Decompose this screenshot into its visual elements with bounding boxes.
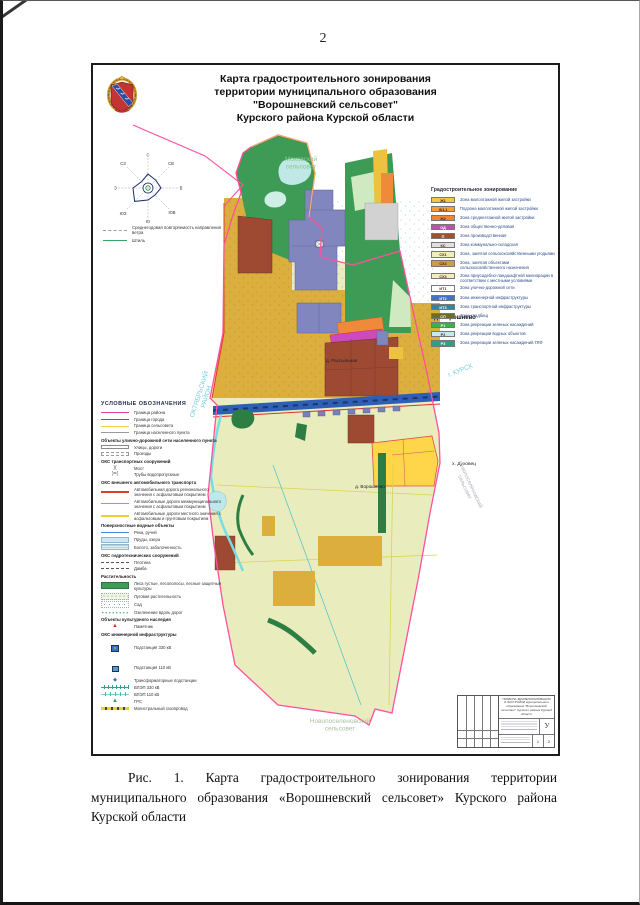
legend-group-title: Поверхностные водные объекты [101, 523, 225, 528]
zone-label: Зона кладбищ [460, 313, 488, 318]
legend-item-label: Памятник [134, 624, 153, 629]
legend-item: Автомобильная дорога регионального значе… [101, 487, 225, 497]
zoning-legend-item: КСЗона коммунально-складская [431, 242, 555, 249]
line-red-swatch [101, 419, 129, 420]
fill-forest-swatch [101, 582, 129, 589]
zone-label: Зона производственная [460, 233, 506, 238]
legend-item-label: Улицы, дороги [134, 445, 162, 450]
zone-zh1-patch [389, 347, 403, 359]
zoning-legend: Градостроительное зонирование Ж1Зона мал… [431, 187, 555, 349]
legend-group-title: Растительность [101, 574, 225, 579]
figure-caption: Рис. 1. Карта градостроительного зониров… [91, 768, 557, 826]
legend-item: Озеленение вдоль дорог [101, 610, 225, 615]
line-yellow-thick-swatch [101, 515, 129, 517]
stamp-letter: У [539, 719, 554, 734]
legend-item: Магистральный газопровод [101, 706, 225, 711]
dots-sad-swatch [101, 601, 129, 608]
sub330-swatch [101, 639, 129, 657]
legend-item-label: Граница района [134, 410, 165, 415]
fill-lightblue-swatch [101, 537, 129, 543]
transformer-swatch: ◆ [101, 678, 129, 683]
zone-swatch: Р3 [431, 340, 455, 347]
zone-label: Зона инженерной инфраструктуры [460, 295, 528, 300]
legend-item-label: Проезды [134, 451, 151, 456]
zoning-legend-item: СПЗона кладбищ [431, 313, 555, 320]
zone-sx2-patch [318, 536, 382, 566]
forest-strip [378, 453, 386, 533]
zone-label: Зона приусадебно-ландшафтной мелиорации … [460, 273, 555, 283]
legend-item-label: Дамба [134, 566, 147, 571]
legend-group-title: ОКС транспортных сооружений [101, 459, 225, 464]
zone-p-main [325, 337, 398, 396]
monument-swatch: ▲ [101, 624, 129, 630]
zone-label: Зона, занятая сельскохозяйственными угод… [460, 251, 555, 256]
line-orange-swatch [101, 503, 129, 504]
legend-item-label: Река, ручей [134, 530, 157, 535]
zoning-legend-item: ОДЗона общественно-деловая [431, 224, 555, 231]
stamp-illegible-text [501, 737, 530, 745]
legend-group-title: ОКС внешнего автомобильного транспорта [101, 480, 225, 485]
legend-item-label: Граница сельсовета [134, 423, 173, 428]
dash-dark-swatch [101, 568, 129, 569]
legend-item-label: Магистральный газопровод [134, 706, 188, 711]
zone-swatch: СХ2 [431, 260, 455, 267]
zoning-legend-item: Ж1.1Подзона малоэтажной жилой застройки [431, 206, 555, 213]
legend-item-label: Подстанция 330 кВ [134, 645, 171, 650]
culvert-swatch: )=( [101, 472, 129, 477]
zone-label: Зона среднеэтажной жилой застройки [460, 215, 535, 220]
line-red-thick-swatch [101, 491, 129, 493]
legend-group-title: Объекты улично-дорожной сети населенного… [101, 438, 225, 443]
zone-swatch: Ж2 [431, 215, 455, 222]
fill-swamp-swatch [101, 544, 129, 550]
zone-sx2-patch [262, 516, 275, 536]
line-yellow-swatch [101, 426, 129, 427]
stamp-title: ПРАВИЛА ЗЕМЛЕПОЛЬЗОВАНИЯ И ЗАСТРОЙКИ мун… [499, 696, 554, 719]
conventional-legend: УСЛОВНЫЕ ОБОЗНАЧЕНИЯ Граница районаГрани… [101, 401, 225, 713]
legend-item: ВЛЭП 330 кВ [101, 685, 225, 690]
zoning-legend-item: ИТ1Зона улично-дорожной сети [431, 285, 555, 292]
road-dashed-swatch [101, 452, 129, 456]
zone-zh2-patch [377, 331, 388, 345]
legend-item: Граница города [101, 417, 225, 422]
zone-label: Зона общественно-деловая [460, 224, 514, 229]
legend-item: Плотина [101, 560, 225, 565]
label-neighbor-right: Новопоселеновскийсельсовет [451, 460, 485, 512]
legend-item: Сад [101, 601, 225, 608]
legend-item: Пруды, озера [101, 537, 225, 543]
zone-swatch: СХ1 [431, 251, 455, 258]
conventional-legend-title: УСЛОВНЫЕ ОБОЗНАЧЕНИЯ [101, 401, 225, 407]
zoning-legend-item: СХ1Зона, занятая сельскохозяйственными у… [431, 251, 555, 258]
legend-item: ▲ГРС [101, 698, 225, 704]
vl110-swatch [101, 692, 129, 696]
legend-item: ◆Трансформаторные подстанции [101, 678, 225, 683]
sub110-swatch [101, 659, 129, 677]
zone-p-south [348, 415, 374, 443]
legend-item-label: Граница города [134, 417, 164, 422]
zone-label: Зона рекреации зеленых насаждений [460, 322, 533, 327]
title-block-stamp: ПРАВИЛА ЗЕМЛЕПОЛЬЗОВАНИЯ И ЗАСТРОЙКИ мун… [457, 695, 555, 748]
grs-swatch: ▲ [101, 698, 129, 704]
legend-item-label: Подстанция 110 кВ [134, 665, 171, 670]
page-number: 2 [3, 31, 640, 47]
label-voroshnevo-2: д. Ворошнево [355, 484, 385, 489]
zone-swatch: Р1 [431, 322, 455, 329]
legend-item-label: ГРС [134, 699, 142, 704]
legend-item: Дамба [101, 566, 225, 571]
zone-label: Зона малоэтажной жилой застройки [460, 197, 531, 202]
zone-swatch: П [431, 233, 455, 240]
zone-label: Подзона малоэтажной жилой застройки [460, 206, 538, 211]
zone-swatch: ИТ1 [431, 285, 455, 292]
zone-swatch: Ж1.1 [431, 206, 455, 213]
legend-item-label: Граница населенного пункта [134, 430, 190, 435]
zone-swatch: Р2 [431, 331, 455, 338]
line-blue-swatch [101, 532, 129, 533]
zoning-legend-item: Р1Зона рекреации зеленых насаждений [431, 322, 555, 329]
zone-swatch: ОД [431, 224, 455, 231]
zone-label: Зона транспортной инфраструктуры [460, 304, 531, 309]
legend-item-label: Сад [134, 602, 142, 607]
legend-item-label: Трансформаторные подстанции [134, 678, 197, 683]
zoning-legend-item: Р2Зона рекреации водных объектов [431, 331, 555, 338]
label-city-kursk: г. КУРСК [447, 363, 474, 379]
zone-swatch: СП [431, 313, 455, 320]
dash-dark-swatch [101, 562, 129, 563]
label-neighbor-bottom: Новопоселеновскийсельсовет [310, 717, 371, 732]
zoning-legend-item: ПЗона производственная [431, 233, 555, 240]
legend-item: Болото, заболоченность [101, 544, 225, 550]
legend-item-label: Трубы водопропускные [134, 472, 179, 477]
line-grey-swatch [101, 432, 129, 433]
legend-group-title: ОКС гидротехнических сооружений [101, 553, 225, 558]
zone-swatch: ИТ2 [431, 295, 455, 302]
stamp-sheets-total: 2 [543, 735, 554, 747]
legend-item-label: Плотина [134, 560, 151, 565]
zoning-legend-item: Ж1Зона малоэтажной жилой застройки [431, 197, 555, 204]
label-rassylnaya: д. Рассыльная [326, 358, 358, 363]
line-magenta-swatch [101, 412, 129, 413]
zoning-legend-item: Ж2Зона среднеэтажной жилой застройки [431, 215, 555, 222]
zoning-legend-item: СХ2Зона, занятая объектами сельскохозяйс… [431, 260, 555, 270]
zone-label: Зона рекреации зеленых насаждений ГЛФ [460, 340, 543, 345]
legend-item: Улицы, дороги [101, 445, 225, 450]
legend-group-title: Объекты культурного наследия [101, 617, 225, 622]
gas-swatch [101, 707, 129, 710]
legend-item: Граница сельсовета [101, 423, 225, 428]
legend-item: Леса густые, лесополосы, лесные защитные… [101, 581, 225, 591]
legend-item: Река, ручей [101, 530, 225, 535]
zone-label: Зона, занятая объектами сельскохозяйстве… [460, 260, 555, 270]
legend-item: Подстанция 110 кВ [101, 659, 225, 677]
legend-item-label: Пруды, озера [134, 537, 160, 542]
legend-item: Граница населенного пункта [101, 430, 225, 435]
dots-road-swatch [101, 610, 129, 614]
district-boundary-line [133, 125, 243, 205]
zone-swatch: Ж1 [431, 197, 455, 204]
legend-item-label: Луговая растительность [134, 594, 181, 599]
legend-item: Луговая растительность [101, 593, 225, 600]
legend-item-label: Автомобильные дороги межмуниципального з… [134, 499, 225, 509]
legend-item: Подстанция 330 кВ [101, 639, 225, 657]
legend-item-label: Мост [134, 466, 144, 471]
zoning-legend-items: Ж1Зона малоэтажной жилой застройкиЖ1.1По… [431, 197, 555, 347]
legend-item: Проезды [101, 451, 225, 456]
legend-item: Автомобильные дороги местного значения с… [101, 511, 225, 521]
legend-item: ВЛЭП 110 кВ [101, 692, 225, 697]
road-swatch [101, 445, 129, 449]
legend-item-label: Автомобильные дороги местного значения с… [134, 511, 225, 521]
legend-item-label: Леса густые, лесополосы, лесные защитные… [134, 581, 225, 591]
zone-label: Зона рекреации водных объектов [460, 331, 526, 336]
legend-item: )(Мост [101, 466, 225, 471]
stamp-illegible-text [501, 721, 537, 732]
zone-swatch: СХ3 [431, 273, 455, 280]
zone-swatch: ИТ3 [431, 304, 455, 311]
figure-frame: Карта градостроительного зонирования тер… [91, 63, 560, 756]
zone-sx2-patch [273, 571, 315, 606]
legend-item-label: Болото, заболоченность [134, 545, 182, 550]
zoning-legend-item: СХ3Зона приусадебно-ландшафтной мелиорац… [431, 273, 555, 283]
legend-item-label: Озеленение вдоль дорог [134, 610, 182, 615]
dots-green-swatch [101, 593, 129, 600]
zoning-legend-item: ИТ2Зона инженерной инфраструктуры [431, 295, 555, 302]
zoning-legend-item: ИТ3Зона транспортной инфраструктуры [431, 304, 555, 311]
zoning-legend-title: Градостроительное зонирование [431, 187, 555, 193]
zone-label: Зона коммунально-складская [460, 242, 518, 247]
zoning-legend-item: Р3Зона рекреации зеленых насаждений ГЛФ [431, 340, 555, 347]
legend-group-title: ОКС инженерной инфраструктуры [101, 632, 225, 637]
legend-item-label: ВЛЭП 330 кВ [134, 685, 159, 690]
stamp-sheet-number: 1 [532, 735, 543, 747]
zone-swatch: КС [431, 242, 455, 249]
conventional-legend-groups: Граница районаГраница городаГраница сель… [101, 410, 225, 711]
zone-p-west [238, 216, 272, 273]
legend-item: ▲Памятник [101, 624, 225, 630]
zone-ks [365, 203, 398, 240]
legend-item-label: ВЛЭП 110 кВ [134, 692, 159, 697]
bridge-swatch: )( [101, 466, 129, 471]
legend-item: )=(Трубы водопропускные [101, 472, 225, 477]
zone-label: Зона улично-дорожной сети [460, 285, 515, 290]
scanned-page: 2 Карта градостроительного зонирования т… [0, 0, 640, 905]
stamp-revision-table [458, 696, 499, 747]
scan-corner-artifact [1, 0, 27, 18]
legend-item: Автомобильные дороги межмуниципального з… [101, 499, 225, 509]
vl330-swatch [101, 685, 129, 689]
legend-item-label: Автомобильная дорога регионального значе… [134, 487, 225, 497]
label-neighbor-top: Моковскийсельсовет [285, 155, 318, 170]
legend-item: Граница района [101, 410, 225, 415]
